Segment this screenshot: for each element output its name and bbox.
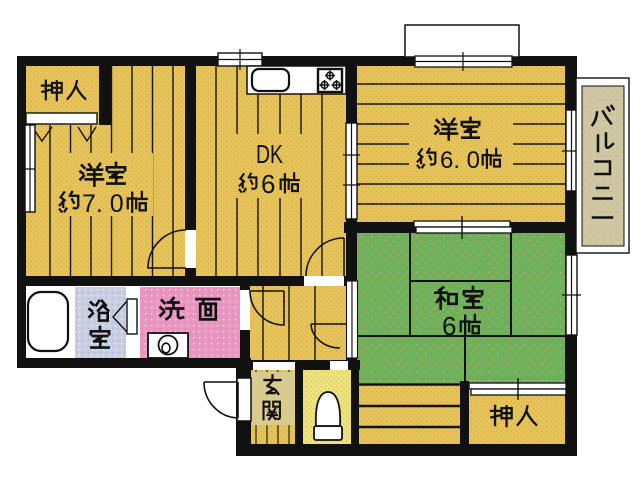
svg-text:6. 0: 6. 0 xyxy=(440,147,480,174)
svg-text:6: 6 xyxy=(442,311,456,341)
svg-text:6: 6 xyxy=(261,169,275,199)
svg-text:7. 0: 7. 0 xyxy=(82,190,124,218)
svg-text:DK: DK xyxy=(256,139,283,169)
